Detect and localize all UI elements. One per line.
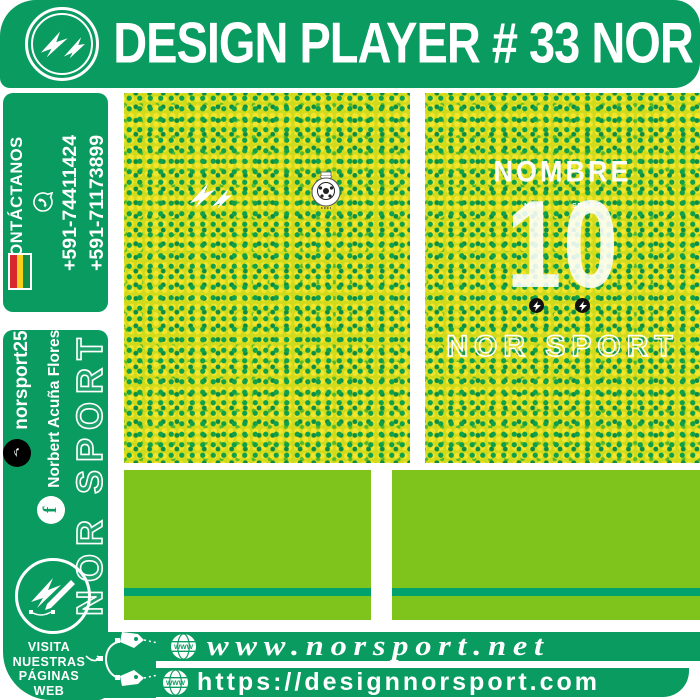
- website-url-designnorsport[interactable]: https://designnorsport.com: [197, 668, 600, 697]
- bolt-and-pen-icon: [27, 574, 79, 618]
- svg-text:WWW: WWW: [174, 644, 194, 651]
- number-label-nor: NOR: [524, 203, 543, 210]
- number-label-sport: SPORT: [572, 203, 601, 210]
- website-url-norsport[interactable]: www.norsport.net: [207, 630, 550, 663]
- jersey-back-panel: NOMBRE 10 NOR SPORT NOR SPORT: [425, 93, 700, 463]
- pen-tool-illustration: [84, 620, 166, 700]
- globe-www-icon: WWW: [170, 633, 197, 660]
- chest-lightning-bolt-icon: [188, 181, 232, 209]
- nor-sport-circle-logo: [25, 7, 99, 81]
- whatsapp-icon: [29, 191, 53, 215]
- player-number: 10: [425, 185, 700, 307]
- jersey-front-panel: [124, 93, 410, 463]
- tiktok-icon: ♪: [3, 439, 31, 467]
- website-bar-2: WWW https://designnorsport.com: [148, 668, 689, 697]
- nor-sport-back-logotype: NOR SPORT: [425, 330, 700, 364]
- page-title: DESIGN PLAYER # 33 NOR: [112, 15, 694, 70]
- design-sheet: DESIGN PLAYER # 33 NOR CONTÁCTANOS +591-…: [0, 0, 700, 700]
- contact-box: CONTÁCTANOS +591-74411424 +591-71173899: [3, 93, 108, 312]
- shorts-right-panel: [392, 470, 700, 620]
- number-bolt-badge: [575, 298, 590, 313]
- visit-our-webpages-text: VISITA NUESTRAS PÁGINAS WEB: [3, 640, 95, 698]
- whatsapp-line: [29, 97, 57, 308]
- facebook-name: Norbert Acuña Flores: [46, 330, 63, 488]
- lightning-bolt-icon: [39, 29, 85, 59]
- svg-text:WWW: WWW: [166, 680, 186, 687]
- phone-number-2: +591-71173899: [84, 97, 111, 308]
- facebook-icon: f: [37, 496, 65, 524]
- club-crest: [308, 170, 344, 212]
- globe-www-icon: WWW: [162, 669, 189, 696]
- design-emblem-circle: [15, 558, 91, 634]
- shorts-stripe: [124, 588, 371, 596]
- number-bolt-badge: [529, 298, 544, 313]
- website-bar-1: WWW www.norsport.net: [148, 632, 700, 661]
- shorts-stripe: [392, 588, 700, 596]
- phone-number-1: +591-74411424: [57, 97, 84, 308]
- shorts-left-panel: [124, 470, 371, 620]
- bolivia-flag: [8, 253, 32, 290]
- title-banner: DESIGN PLAYER # 33 NOR: [0, 0, 700, 88]
- tiktok-handle: norsport25: [11, 330, 32, 429]
